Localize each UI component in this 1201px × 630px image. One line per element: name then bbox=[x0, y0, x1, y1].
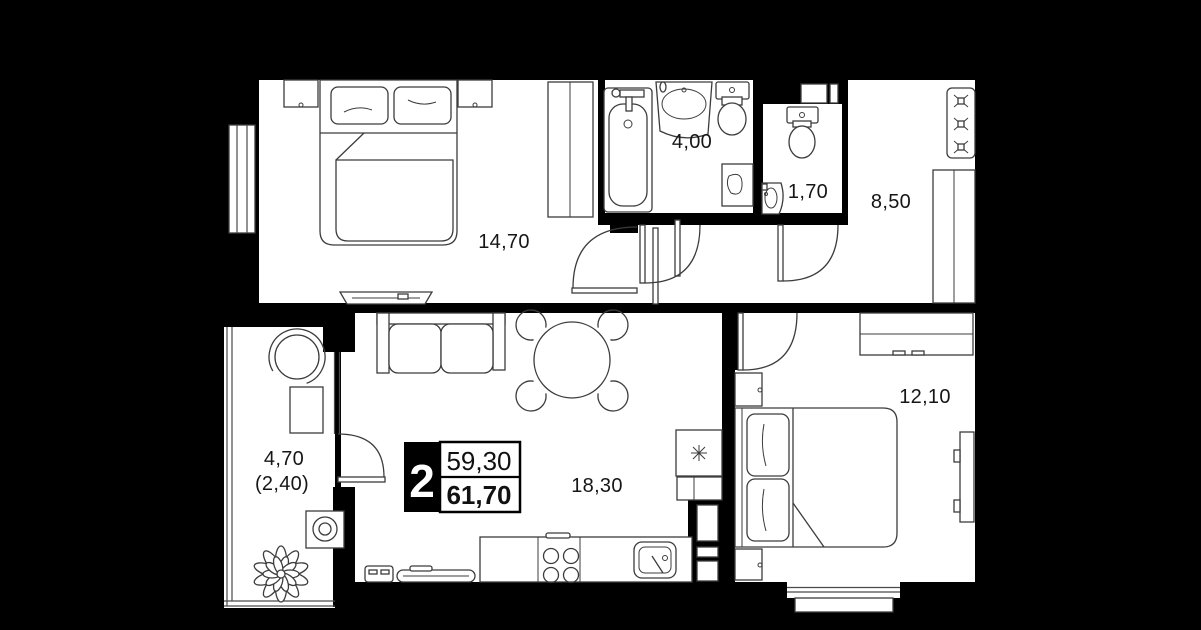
label-bedroom-2-area: 12,10 bbox=[899, 386, 951, 408]
door-balcony bbox=[338, 477, 385, 482]
pillow-icon bbox=[394, 87, 451, 124]
small-table-icon bbox=[290, 387, 323, 433]
apartment-badge: 2 59,30 61,70 bbox=[404, 442, 520, 512]
door-wc bbox=[778, 225, 783, 281]
label-bathroom-area: 4,00 bbox=[672, 131, 712, 153]
label-bedroom-1-area: 14,70 bbox=[478, 231, 530, 253]
window-bedroom-2 bbox=[787, 582, 900, 598]
pillow-icon bbox=[331, 87, 388, 124]
badge-rooms-count: 2 bbox=[409, 455, 435, 507]
laundry-basket-icon bbox=[722, 164, 753, 206]
pillow-icon bbox=[747, 414, 789, 476]
sofa-icon bbox=[377, 313, 505, 324]
badge-total-area: 61,70 bbox=[446, 480, 511, 510]
blanket-icon bbox=[336, 160, 453, 241]
entrance-door-icon bbox=[801, 84, 827, 103]
floor-plan-canvas: 14,70 4,00 1,70 8,50 12,10 18,30 4,70 (2… bbox=[0, 0, 1201, 630]
fridge-asterisk-icon bbox=[691, 445, 707, 461]
window-bedroom-1 bbox=[229, 125, 255, 233]
room-kitchen-living-sliver bbox=[341, 352, 355, 487]
label-balcony-area: 4,70 bbox=[264, 448, 304, 470]
floor-plan: 14,70 4,00 1,70 8,50 12,10 18,30 4,70 (2… bbox=[0, 0, 1201, 630]
window-sill-bedroom-2 bbox=[795, 598, 893, 612]
label-balcony-area-note: (2,40) bbox=[255, 473, 309, 495]
dining-table-icon bbox=[534, 322, 610, 398]
badge-living-area: 59,30 bbox=[446, 446, 511, 476]
label-wc-area: 1,70 bbox=[788, 181, 828, 203]
label-kitchen-area: 18,30 bbox=[571, 475, 623, 497]
kitchen-cabinet-icon bbox=[677, 477, 722, 500]
bath-faucet-icon bbox=[620, 90, 644, 97]
door-bedroom-2 bbox=[738, 313, 743, 370]
pillow-icon bbox=[747, 479, 789, 541]
label-hallway-area: 8,50 bbox=[871, 191, 911, 213]
door-bedroom-1 bbox=[572, 288, 637, 293]
door-bathroom bbox=[640, 225, 645, 283]
dresser-icon bbox=[960, 432, 974, 522]
